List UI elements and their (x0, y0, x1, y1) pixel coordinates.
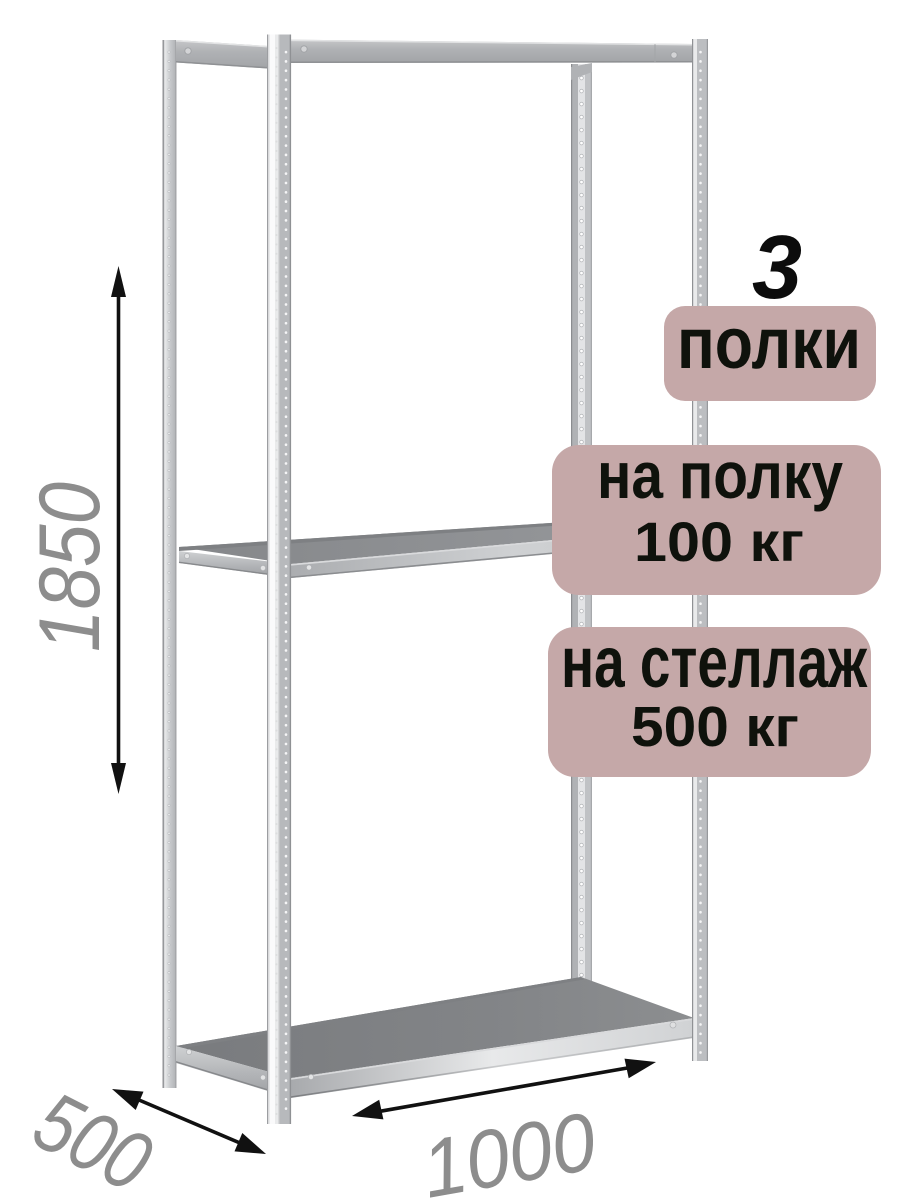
svg-text:на стеллаж: на стеллаж (561, 623, 868, 703)
svg-text:100 кг: 100 кг (634, 510, 804, 573)
svg-text:на полку: на полку (597, 438, 843, 512)
svg-text:3: 3 (752, 218, 802, 318)
svg-text:полки: полки (677, 304, 861, 384)
svg-text:500 кг: 500 кг (631, 695, 799, 759)
svg-text:1850: 1850 (22, 482, 118, 652)
